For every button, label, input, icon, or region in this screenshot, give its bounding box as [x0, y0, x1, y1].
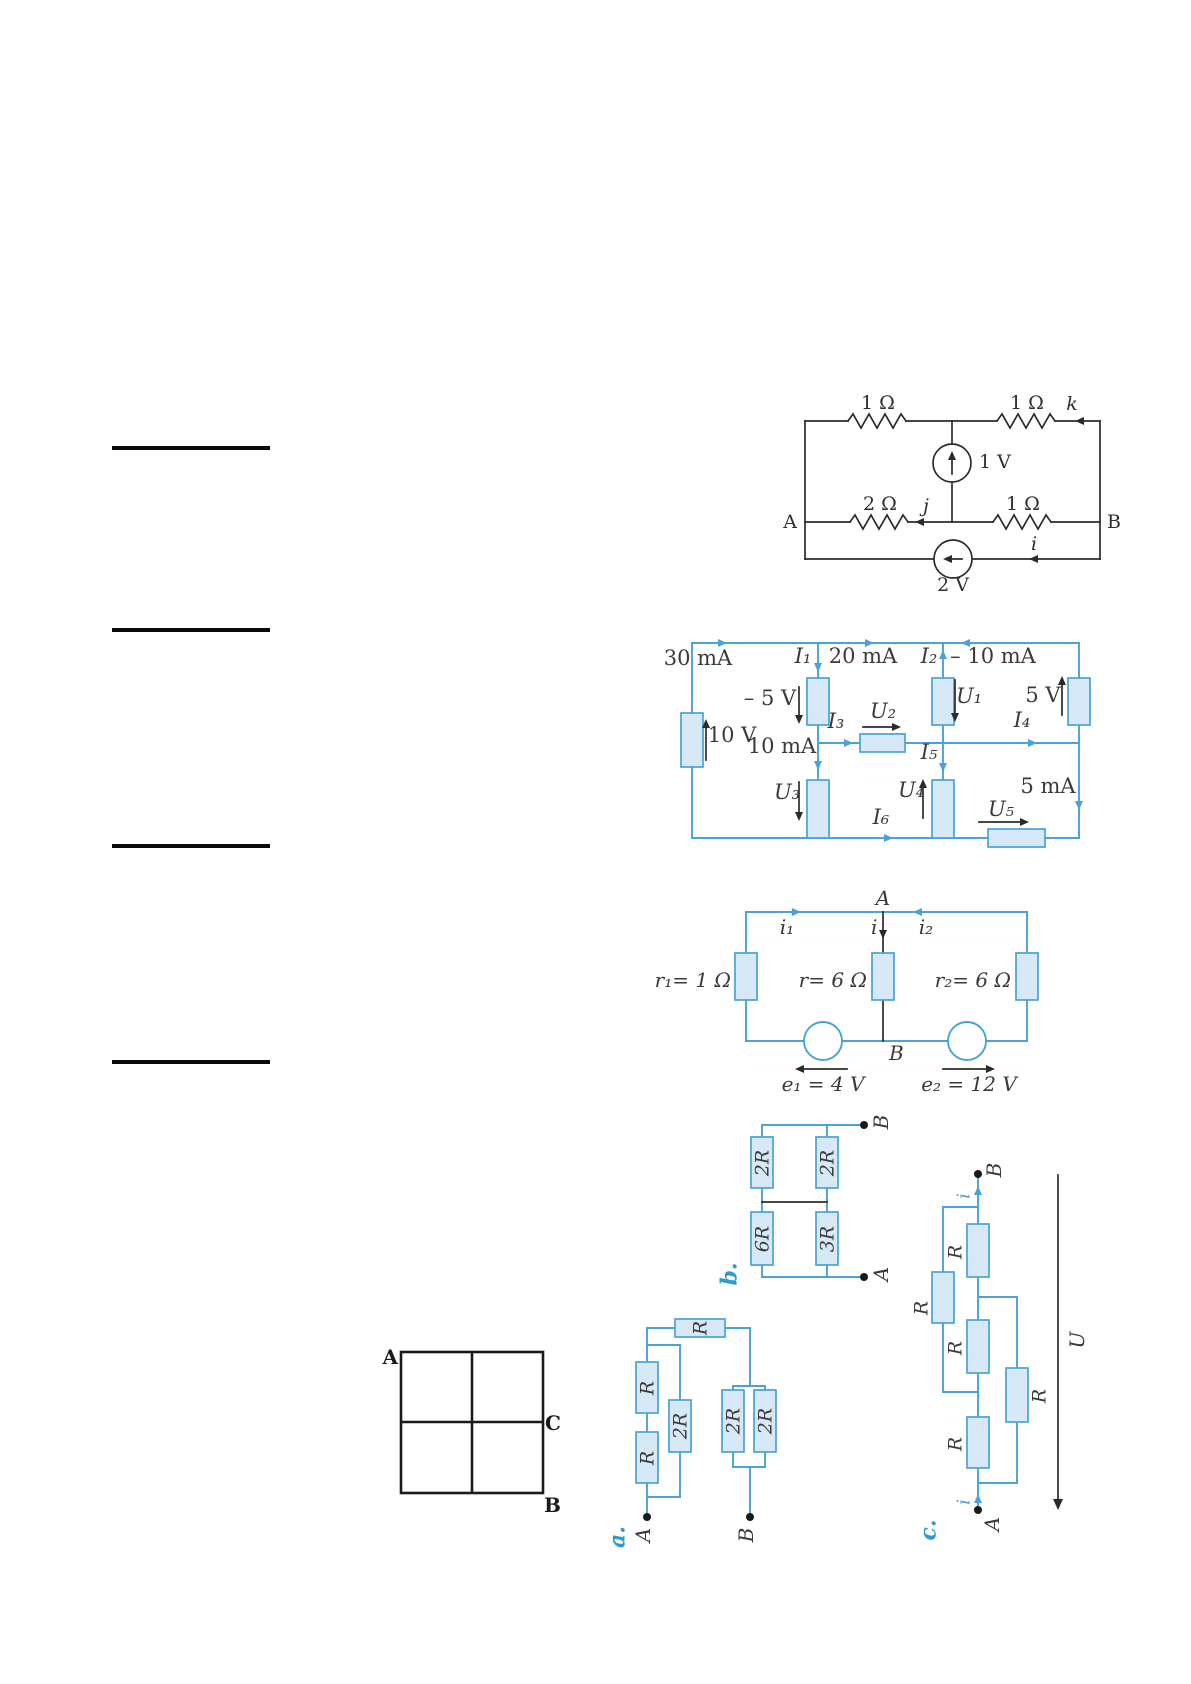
label-R-series1: R: [637, 1381, 659, 1396]
resistor-1ohm-mid-right: [993, 515, 1051, 529]
label-terminal-a: A: [631, 1528, 655, 1544]
resistor-R-5: [967, 1417, 989, 1468]
resistor-r2: [1016, 953, 1038, 1000]
label-r-mid-right: 1 Ω: [1006, 493, 1040, 515]
label-terminal-b: B: [734, 1528, 758, 1544]
label-U2: U₂: [870, 699, 896, 723]
emf-source-e1: [804, 1022, 842, 1060]
element-10v: [681, 713, 703, 767]
current-i-top-arrow: [974, 1186, 982, 1195]
answer-rule-2: [112, 628, 270, 632]
element-minus5v: [807, 678, 829, 725]
label-U4: U₄: [898, 778, 924, 802]
terminal-a-dot: [860, 1273, 868, 1281]
label-U1: U₁: [956, 684, 982, 708]
label-i2: i₂: [919, 915, 933, 939]
element-u4: [932, 780, 954, 838]
resistor-1ohm-top-right: [997, 414, 1055, 428]
bridge-arrows: [915, 417, 1084, 563]
terminal-b-dot: [974, 1170, 982, 1178]
element-u1: [932, 678, 954, 725]
current-i-bottom-arrow: [974, 1494, 982, 1503]
label-R-1: R: [945, 1245, 967, 1260]
label-U3: U₃: [774, 780, 800, 804]
label-r1: r₁= 1 Ω: [655, 968, 731, 992]
label-I1: I₁: [794, 644, 812, 668]
resistor-R-4: [1006, 1368, 1028, 1422]
current-j-arrow: [915, 518, 924, 526]
figure-network-b: 2R 2R 6R 3R B A b.: [695, 1058, 935, 1308]
resistor-2ohm-mid-left: [850, 515, 908, 529]
label-30ma: 30 mA: [664, 646, 733, 670]
answer-rule-1: [112, 446, 270, 450]
label-terminal-b: B: [982, 1163, 1006, 1179]
figure-square-grid: A C B: [385, 1340, 570, 1520]
element-u3: [807, 780, 829, 838]
label-i1: i₁: [780, 915, 794, 939]
current-i-arrow: [1029, 555, 1038, 563]
label-terminal-a: A: [869, 1267, 893, 1283]
label-I2: I₂: [920, 644, 938, 668]
label-e2: e₂ = 12 V: [921, 1072, 1019, 1096]
label-R-top: R: [690, 1321, 712, 1336]
network-a-wires: [647, 1328, 765, 1517]
element-5v: [1068, 678, 1090, 725]
network-b-wires: [762, 1125, 864, 1277]
resistor-R-1: [967, 1224, 989, 1277]
figure-current-network: 30 mA I₁ 20 mA I₂ – 10 mA – 5 V U₁ 5 V 1…: [635, 588, 1095, 858]
label-current-k: k: [1066, 393, 1078, 415]
label-5ma: 5 mA: [1020, 774, 1076, 798]
terminal-b-dot: [860, 1121, 868, 1129]
label-20ma: 20 mA: [829, 644, 898, 668]
label-r-top-right: 1 Ω: [1010, 392, 1044, 414]
terminal-b-dot: [746, 1513, 754, 1521]
u-arrow: [1053, 1175, 1063, 1510]
label-I5: I₅: [920, 740, 938, 764]
document-page: 1 Ω 1 Ω k 1 V A 2 Ω j 1 Ω B i 2 V: [0, 0, 1191, 1684]
figure-network-c: R R R R R i i U B A c.: [905, 1158, 1120, 1563]
label-2R-pair1: 2R: [723, 1408, 745, 1435]
figure-network-a: R R R 2R 2R 2R A B a.: [565, 1288, 795, 1553]
label-minus10ma: – 10 mA: [950, 644, 1036, 668]
label-source-1v: 1 V: [979, 451, 1011, 473]
label-current-i: i: [1031, 533, 1037, 555]
label-5v: 5 V: [1025, 683, 1061, 707]
label-2R-2: 2R: [817, 1150, 839, 1177]
label-square-c: C: [545, 1411, 561, 1435]
figure-bridge-circuit: 1 Ω 1 Ω k 1 V A 2 Ω j 1 Ω B i 2 V: [745, 362, 1135, 597]
resistor-1ohm-top-left: [848, 414, 906, 428]
label-i-top: i: [953, 1193, 974, 1199]
answer-rule-3: [112, 844, 270, 848]
label-I3: I₃: [827, 709, 845, 733]
label-terminal-b: B: [869, 1115, 893, 1131]
emf-source-e2: [948, 1022, 986, 1060]
terminal-a-dot: [974, 1506, 982, 1514]
label-R-3: R: [945, 1341, 967, 1356]
resistor-R-3: [967, 1320, 989, 1373]
label-square-a: A: [381, 1345, 398, 1369]
label-U5: U₅: [988, 797, 1015, 821]
label-i: i: [871, 915, 877, 939]
label-r: r= 6 Ω: [799, 968, 867, 992]
resistor-R-2: [932, 1272, 954, 1323]
label-square-b: B: [544, 1493, 561, 1517]
label-U: U: [1065, 1330, 1089, 1348]
current-k-arrow: [1075, 417, 1084, 425]
label-i-bottom: i: [953, 1499, 974, 1505]
label-tag-b: b.: [717, 1262, 743, 1285]
resistor-r1: [735, 953, 757, 1000]
resistor-r: [872, 953, 894, 1000]
label-minus5v: – 5 V: [744, 686, 797, 710]
label-I4: I₄: [1013, 708, 1031, 732]
label-node-a: A: [874, 886, 890, 910]
label-R-5: R: [945, 1437, 967, 1452]
label-terminal-a: A: [980, 1517, 1004, 1533]
terminal-a-dot: [643, 1513, 651, 1521]
square-grid-lines: [401, 1352, 543, 1493]
label-node-a: A: [782, 511, 797, 533]
label-R-4: R: [1029, 1389, 1051, 1404]
label-2R-1: 2R: [752, 1150, 774, 1177]
element-u2: [860, 734, 905, 752]
label-I6: I₆: [872, 805, 890, 829]
bridge-wires: [805, 414, 1100, 578]
label-tag-a: a.: [605, 1526, 631, 1548]
label-r-top-left: 1 Ω: [861, 392, 895, 414]
label-R-2: R: [911, 1301, 933, 1316]
answer-rule-4: [112, 1060, 270, 1064]
label-tag-c: c.: [916, 1519, 942, 1540]
label-r2: r₂= 6 Ω: [935, 968, 1011, 992]
label-R-series2: R: [637, 1451, 659, 1466]
label-r-mid-left: 2 Ω: [863, 493, 897, 515]
label-10ma: 10 mA: [748, 734, 817, 758]
label-6R: 6R: [752, 1226, 774, 1252]
label-node-b: B: [1107, 511, 1121, 533]
label-2R-pair2: 2R: [755, 1408, 777, 1435]
label-2R-parallel: 2R: [670, 1413, 692, 1440]
label-3R: 3R: [817, 1226, 839, 1252]
label-current-j: j: [919, 495, 929, 517]
